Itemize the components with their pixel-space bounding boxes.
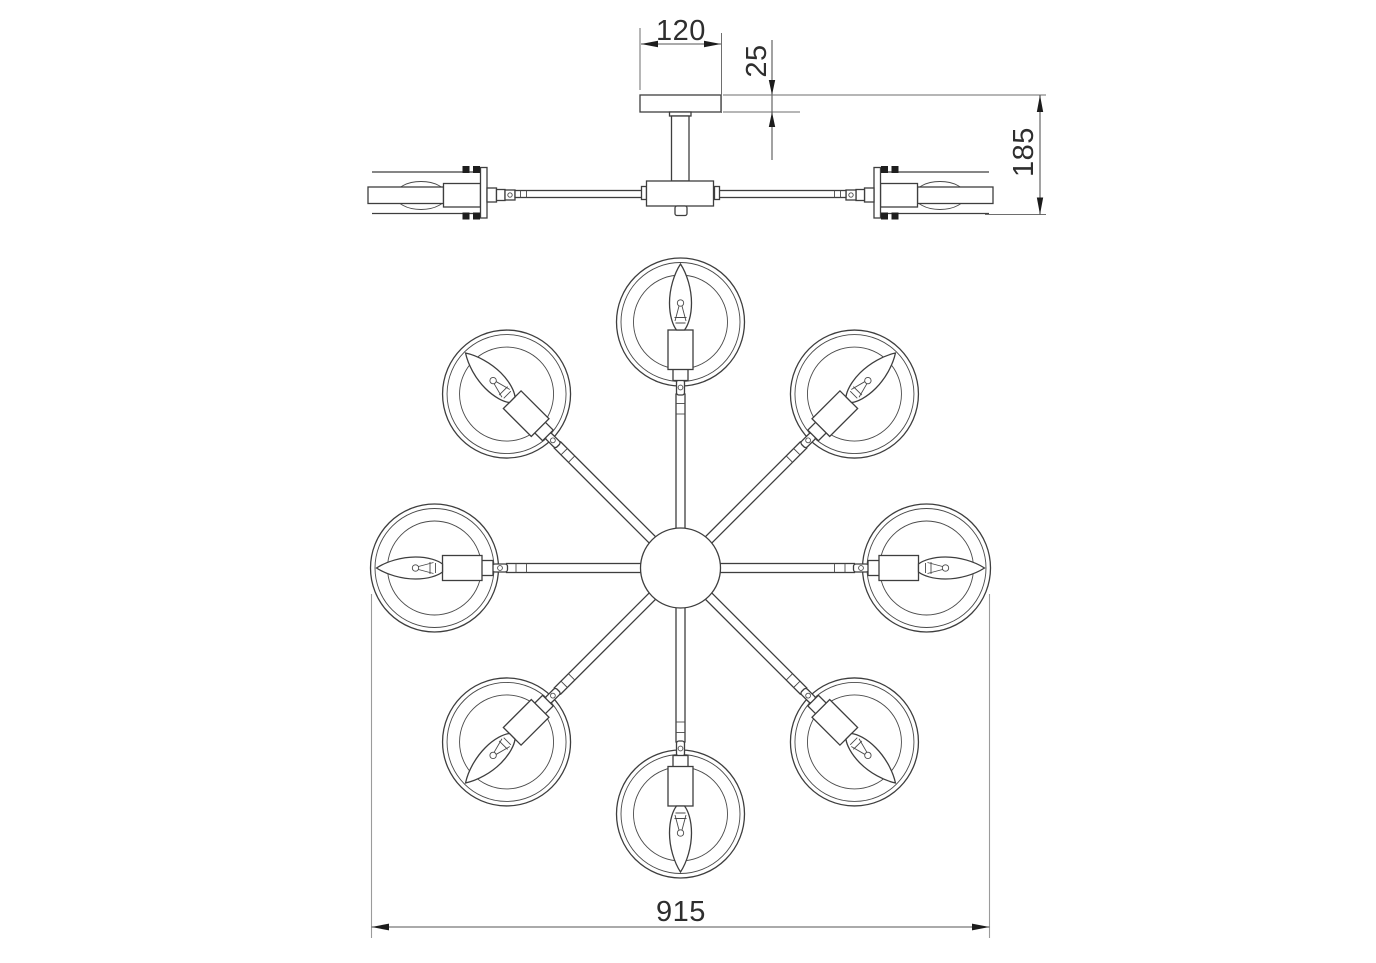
shade-holder-bracket — [481, 168, 488, 219]
arm-tube — [676, 394, 685, 534]
finial — [675, 206, 687, 216]
arrowhead — [769, 112, 775, 127]
arrowhead — [972, 924, 990, 931]
arrowhead — [372, 924, 390, 931]
clamp-screw — [473, 166, 480, 173]
dimension-canopy-height: 25 — [723, 40, 800, 160]
arm-tube — [515, 191, 647, 198]
center-body — [647, 181, 714, 206]
lamp-unit-w — [371, 504, 647, 632]
side-view — [368, 95, 993, 220]
arm-nut — [497, 190, 506, 201]
dim-label-fixture-height: 185 — [1008, 127, 1040, 177]
side-lamp-arm — [368, 166, 647, 220]
clamp-screw — [473, 213, 480, 220]
top-view — [371, 258, 991, 878]
center-hub — [641, 528, 721, 608]
drawing-sheet: 120 25 185 915 — [0, 0, 1376, 963]
arrowhead — [1037, 95, 1043, 112]
dim-label-canopy-width: 120 — [656, 15, 706, 47]
dim-label-canopy-height: 25 — [741, 44, 773, 77]
clamp-screw — [463, 213, 470, 220]
ceiling-canopy — [640, 95, 721, 112]
arrowhead — [769, 80, 775, 95]
clamp-screw — [463, 166, 470, 173]
arm-nut — [673, 369, 688, 381]
dim-label-fixture-diameter: 915 — [656, 896, 706, 928]
lamp-socket — [668, 330, 693, 370]
socket-stub — [487, 188, 497, 202]
lamp-unit — [617, 258, 745, 534]
lamp-socket — [444, 184, 481, 208]
chandelier-technical-drawing: 120 25 185 915 — [0, 0, 1376, 963]
candle-bulb — [670, 264, 692, 330]
lamp-tube — [368, 187, 444, 204]
lamp-unit-e — [715, 504, 991, 632]
lamp-unit-s — [617, 602, 745, 878]
hub-arm-cap — [642, 187, 647, 200]
side-lamp-arm-right — [715, 166, 994, 220]
stem-tube — [672, 116, 690, 181]
arrowhead — [1037, 198, 1043, 215]
arrowhead — [704, 41, 721, 47]
arm-joint — [505, 190, 515, 200]
